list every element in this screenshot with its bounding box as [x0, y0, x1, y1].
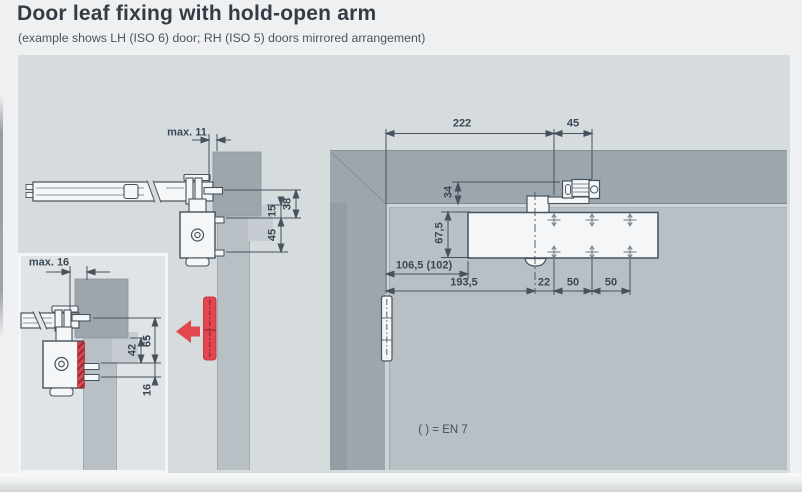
dim-label-50b: 50 [605, 278, 617, 289]
dim-label-65: 65 [143, 335, 154, 347]
dim-label-45: 45 [268, 229, 279, 241]
dim-label-67-5: 67,5 [435, 222, 446, 243]
detail-inset-panel [18, 253, 168, 473]
en7-legend-note: ( ) = EN 7 [418, 424, 468, 436]
dim-label-max16: max. 16 [29, 258, 69, 269]
dim-label-45b: 45 [567, 119, 579, 130]
page-subtitle: (example shows LH (ISO 6) door; RH (ISO … [18, 31, 425, 45]
dim-label-15: 15 [268, 205, 279, 217]
dim-label-193-5: 193,5 [450, 278, 478, 289]
dim-label-222: 222 [453, 119, 471, 130]
page-title: Door leaf fixing with hold-open arm [17, 2, 376, 26]
dim-label-34: 34 [444, 186, 455, 198]
dim-label-106-5: 106,5 (102) [396, 261, 452, 272]
page-bottom-edge [0, 473, 802, 492]
dim-label-42: 42 [128, 344, 139, 356]
dim-label-38: 38 [283, 198, 294, 210]
dim-label-22: 22 [538, 278, 550, 289]
dim-label-50a: 50 [567, 278, 579, 289]
book-spine-shadow [0, 96, 3, 340]
dim-label-max11: max. 11 [167, 128, 207, 139]
dim-label-16: 16 [143, 384, 154, 396]
